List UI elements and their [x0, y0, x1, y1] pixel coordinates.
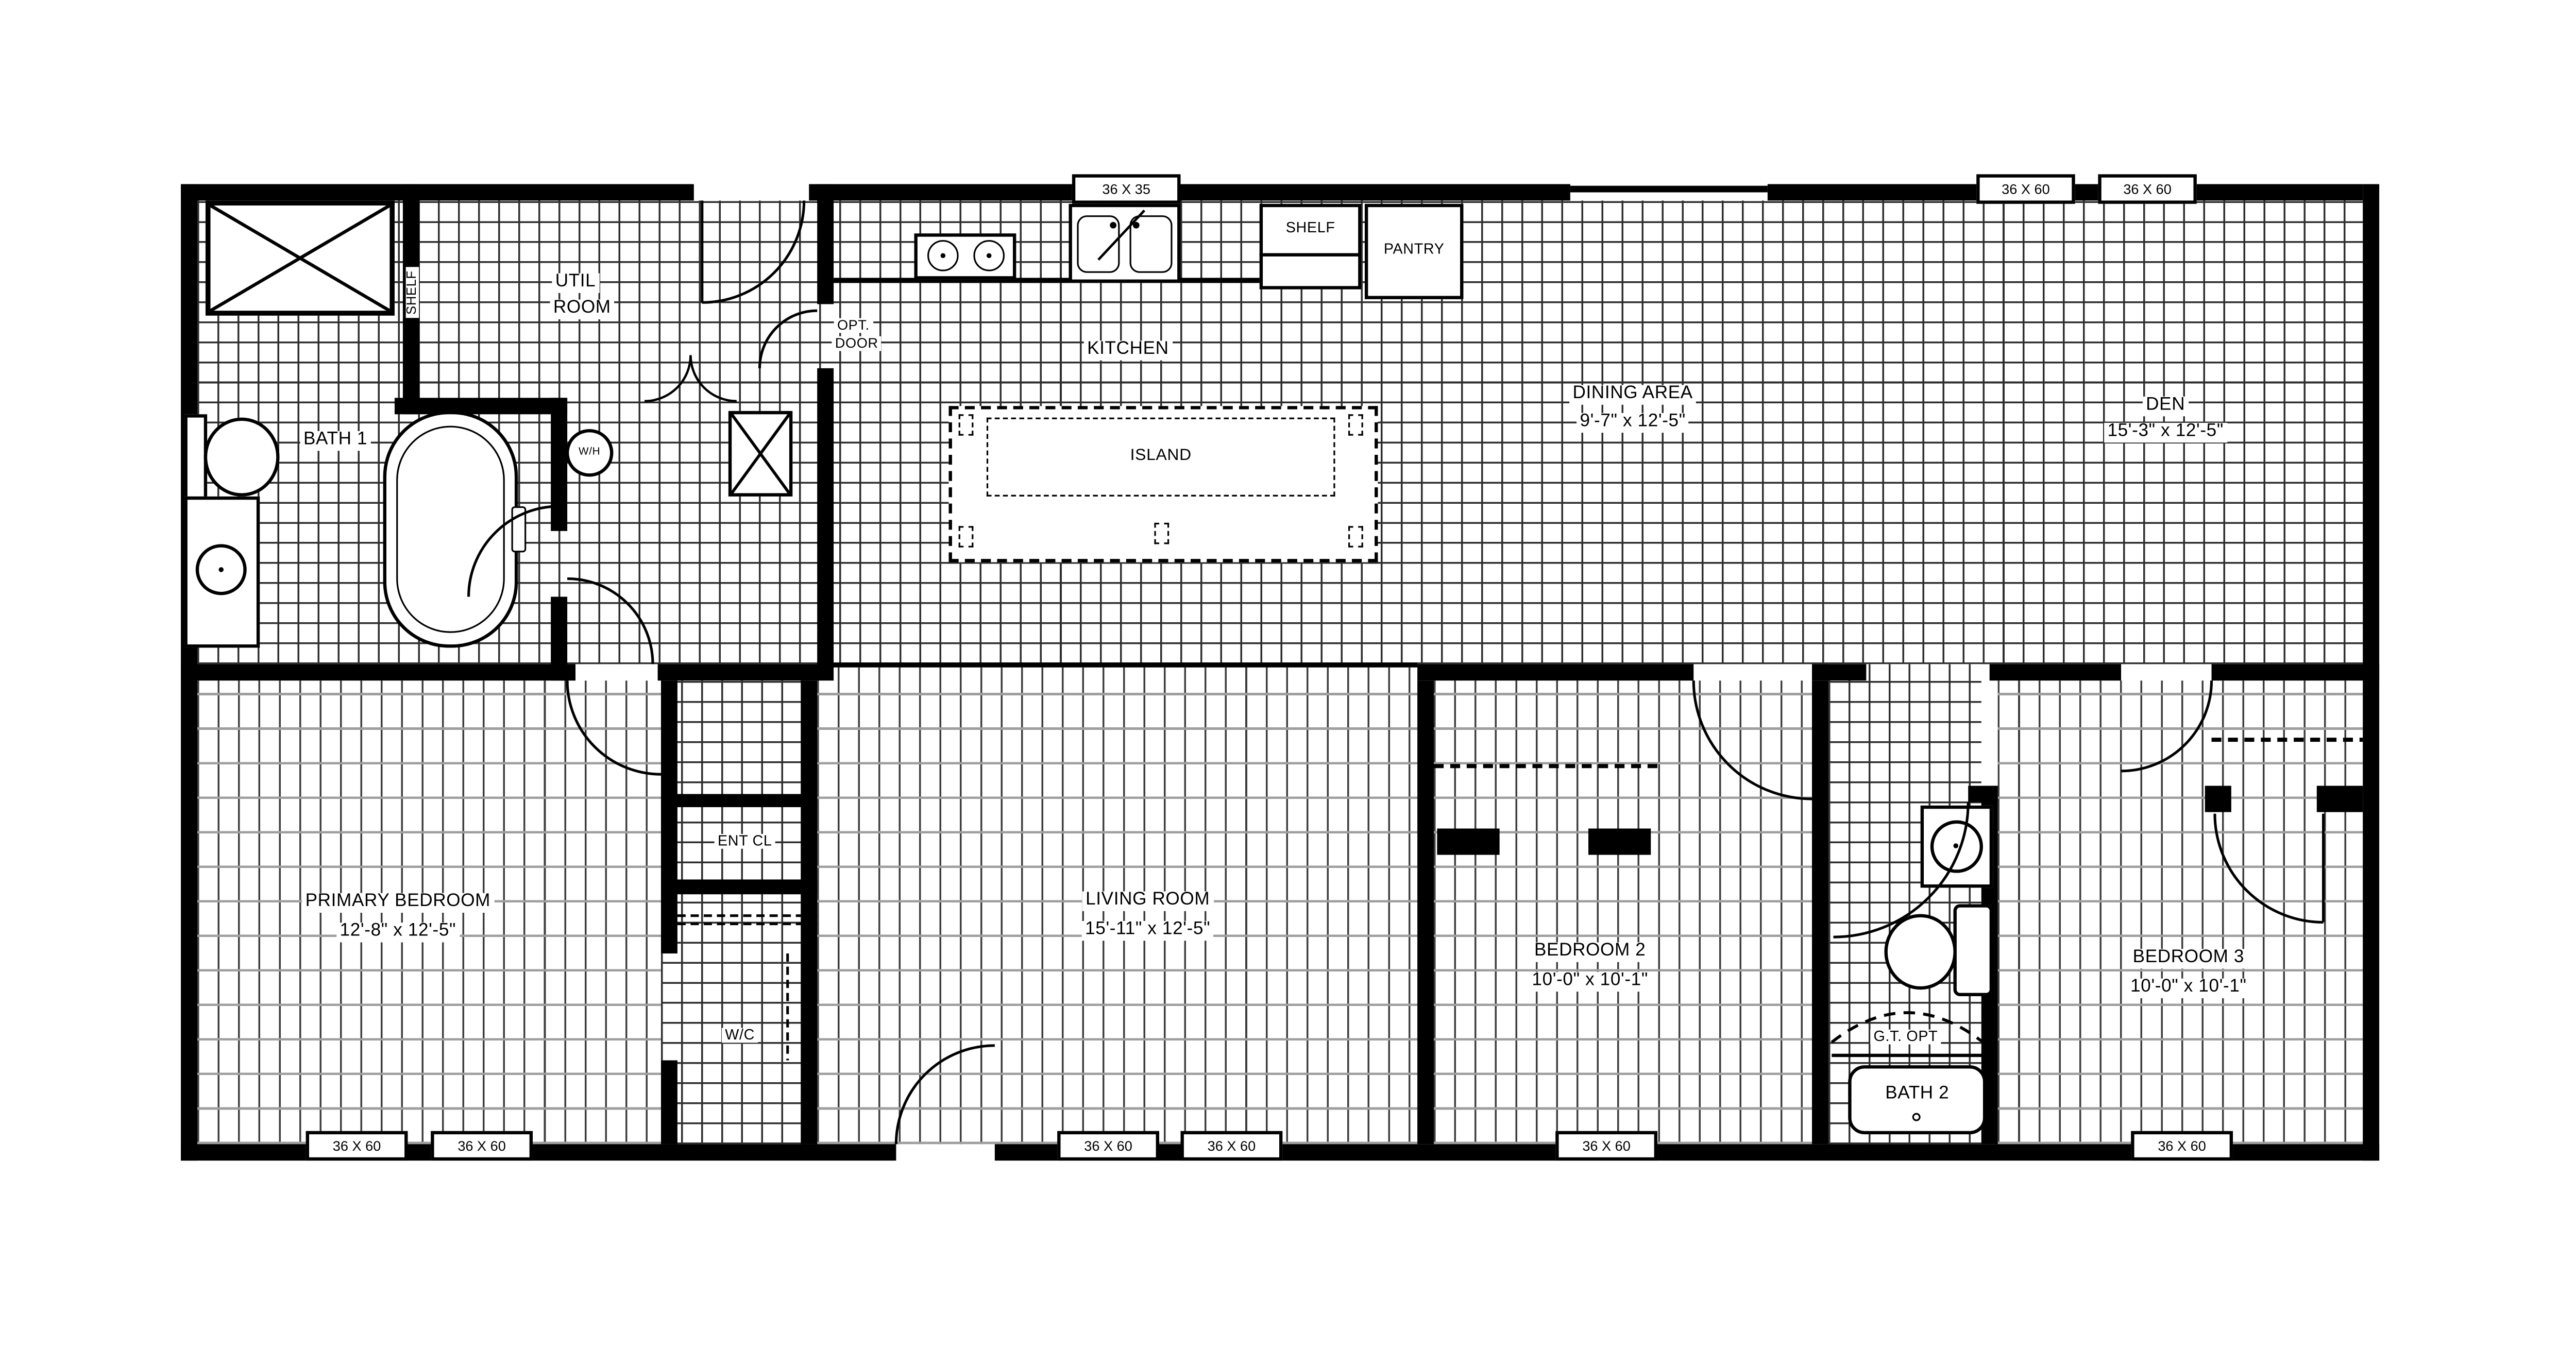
- wall-stub-bed2-closet-a: [1437, 829, 1499, 855]
- label-bed3-dims: 10'-0" x 10'-1": [2127, 979, 2250, 998]
- window-label: 36 X 60: [1582, 1138, 1631, 1154]
- window-label: 36 X 60: [2002, 181, 2050, 197]
- wall-closet-west-lower: [661, 1061, 677, 1145]
- label-kitchen-shelf: SHELF: [1282, 221, 1338, 236]
- wall-stub-bed2-closet-b: [1588, 829, 1651, 855]
- label-opt-door-line1: OPT.: [834, 318, 873, 333]
- vanity2-drain: [1954, 843, 1959, 848]
- label-pantry: PANTRY: [1380, 242, 1447, 258]
- wall-outer-top-thin: [1570, 186, 1768, 193]
- window-label: 36 X 60: [2123, 181, 2172, 197]
- bathtub1-faucet: [512, 506, 527, 552]
- window-bottom-bed3: 36 X 60: [2131, 1131, 2233, 1161]
- vanity1-drain: [218, 567, 224, 572]
- floor-primary-bedroom: [197, 680, 661, 1144]
- wall-outer-bottom-left: [181, 1144, 896, 1161]
- wall-mid-d: [1812, 664, 1866, 680]
- wall-outer-top-mid: [809, 184, 1570, 200]
- island-post-bl: [959, 526, 974, 547]
- wall-mid-a: [181, 664, 575, 680]
- kitchen-counter-edge: [834, 278, 1261, 282]
- floor-bedroom2: [1434, 680, 1812, 1144]
- wall-bath2-top-chunk: [1968, 786, 1997, 803]
- wall-kitchen-west-upper: [817, 184, 834, 304]
- window-label: 36 X 60: [333, 1138, 381, 1154]
- wall-closet-west-upper: [661, 680, 677, 953]
- wall-entcl-bottom: [661, 879, 817, 894]
- shower-stall: [206, 200, 395, 315]
- window-label: 36 X 60: [2158, 1138, 2206, 1154]
- label-island: ISLAND: [1127, 448, 1195, 466]
- toilet2-tank: [1954, 904, 1993, 996]
- wall-stub-bed3-closet-b: [2317, 786, 2363, 812]
- label-den-dims: 15'-3" x 12'-5": [2104, 423, 2227, 442]
- wall-bath1-north: [395, 398, 567, 414]
- label-bath1: BATH 1: [300, 431, 371, 450]
- label-water-heater: W/H: [579, 447, 600, 458]
- island-post-bm: [1154, 523, 1169, 544]
- window-bottom-primary-a: 36 X 60: [306, 1131, 408, 1161]
- window-bottom-primary-b: 36 X 60: [431, 1131, 533, 1161]
- label-kitchen: KITCHEN: [1084, 340, 1172, 360]
- window-top-kitchen: 36 X 35: [1072, 174, 1181, 203]
- island-post-tr: [1348, 414, 1363, 435]
- island-post-br: [1348, 526, 1363, 547]
- wall-closet-east: [801, 680, 817, 1144]
- label-living-dims: 15'-11" x 12'-5": [1082, 921, 1214, 940]
- island-post-tl: [959, 414, 974, 435]
- label-bed3-name: BEDROOM 3: [2129, 949, 2247, 968]
- label-living-name: LIVING ROOM: [1082, 892, 1213, 911]
- window-bottom-bed2: 36 X 60: [1555, 1131, 1657, 1161]
- wall-kitchen-west-lower: [817, 368, 834, 664]
- label-dining-name: DINING AREA: [1569, 385, 1696, 404]
- wall-bed2-bath2: [1812, 680, 1828, 1144]
- window-bottom-living-b: 36 X 60: [1180, 1131, 1282, 1161]
- floor-closet-strip: [661, 680, 817, 1144]
- label-bed2-name: BEDROOM 2: [1531, 942, 1649, 961]
- kitchen-shelf-divider: [1260, 253, 1362, 256]
- bathtub2-drain: [1912, 1113, 1921, 1121]
- kitchen-shelf-cabinet: [1260, 204, 1362, 289]
- window-bottom-living-a: 36 X 60: [1057, 1131, 1159, 1161]
- label-opt-door-line2: DOOR: [832, 336, 882, 351]
- label-bed2-dims: 10'-0" x 10'-1": [1529, 972, 1651, 991]
- gt-opt-line: [1832, 1054, 1983, 1057]
- floor-bedroom3: [1998, 680, 2363, 1144]
- stove-burner-right-dot: [987, 253, 992, 258]
- window-label: 36 X 60: [1084, 1138, 1132, 1154]
- kitchen-faucet-dot-left: [1110, 222, 1116, 229]
- wall-outer-top-left: [181, 184, 694, 200]
- window-top-den-a: 36 X 60: [1976, 174, 2075, 203]
- label-util-line2: ROOM: [550, 300, 615, 319]
- wall-bath1-east-upper: [551, 398, 567, 531]
- wall-entcl-top: [661, 794, 817, 807]
- label-gt-opt: G.T. OPT: [1870, 1030, 1941, 1045]
- wall-living-bed2: [1417, 680, 1434, 1144]
- wall-mid-c: [1417, 664, 1693, 680]
- label-shelf-vertical: SHELF: [406, 267, 420, 318]
- label-dining-dims: 9'-7" x 12'-5": [1577, 413, 1689, 432]
- wall-mid-e: [1990, 664, 2121, 680]
- wall-mid-f: [2212, 664, 2380, 680]
- label-den-name: DEN: [2143, 397, 2189, 416]
- kitchen-faucet-dot-right: [1133, 222, 1140, 229]
- window-label: 36 X 35: [1102, 181, 1150, 197]
- hvac-chase-box: [728, 411, 792, 497]
- label-util-line1: UTIL: [552, 274, 599, 293]
- wall-stub-bed3-closet-a: [2205, 786, 2231, 812]
- floor-plan-canvas: 36 X 35 36 X 60 36 X 60 36 X 60 36 X 60 …: [0, 0, 2576, 1348]
- label-bath2: BATH 2: [1882, 1085, 1953, 1104]
- stove-burner-left-dot: [941, 253, 946, 258]
- toilet1-bowl: [204, 418, 280, 497]
- floor-transition-line: [817, 662, 1417, 667]
- window-label: 36 X 60: [457, 1138, 506, 1154]
- label-primary-name: PRIMARY BEDROOM: [302, 893, 494, 912]
- window-label: 36 X 60: [1208, 1138, 1256, 1154]
- bathtub1-inner: [396, 426, 505, 633]
- toilet2-bowl: [1884, 914, 1956, 989]
- label-primary-dims: 12'-8" x 12'-5": [336, 923, 459, 942]
- label-ent-cl: ENT CL: [715, 834, 775, 849]
- wall-mid-b: [658, 664, 834, 680]
- label-wc: W/C: [722, 1028, 758, 1044]
- window-top-den-b: 36 X 60: [2098, 174, 2196, 203]
